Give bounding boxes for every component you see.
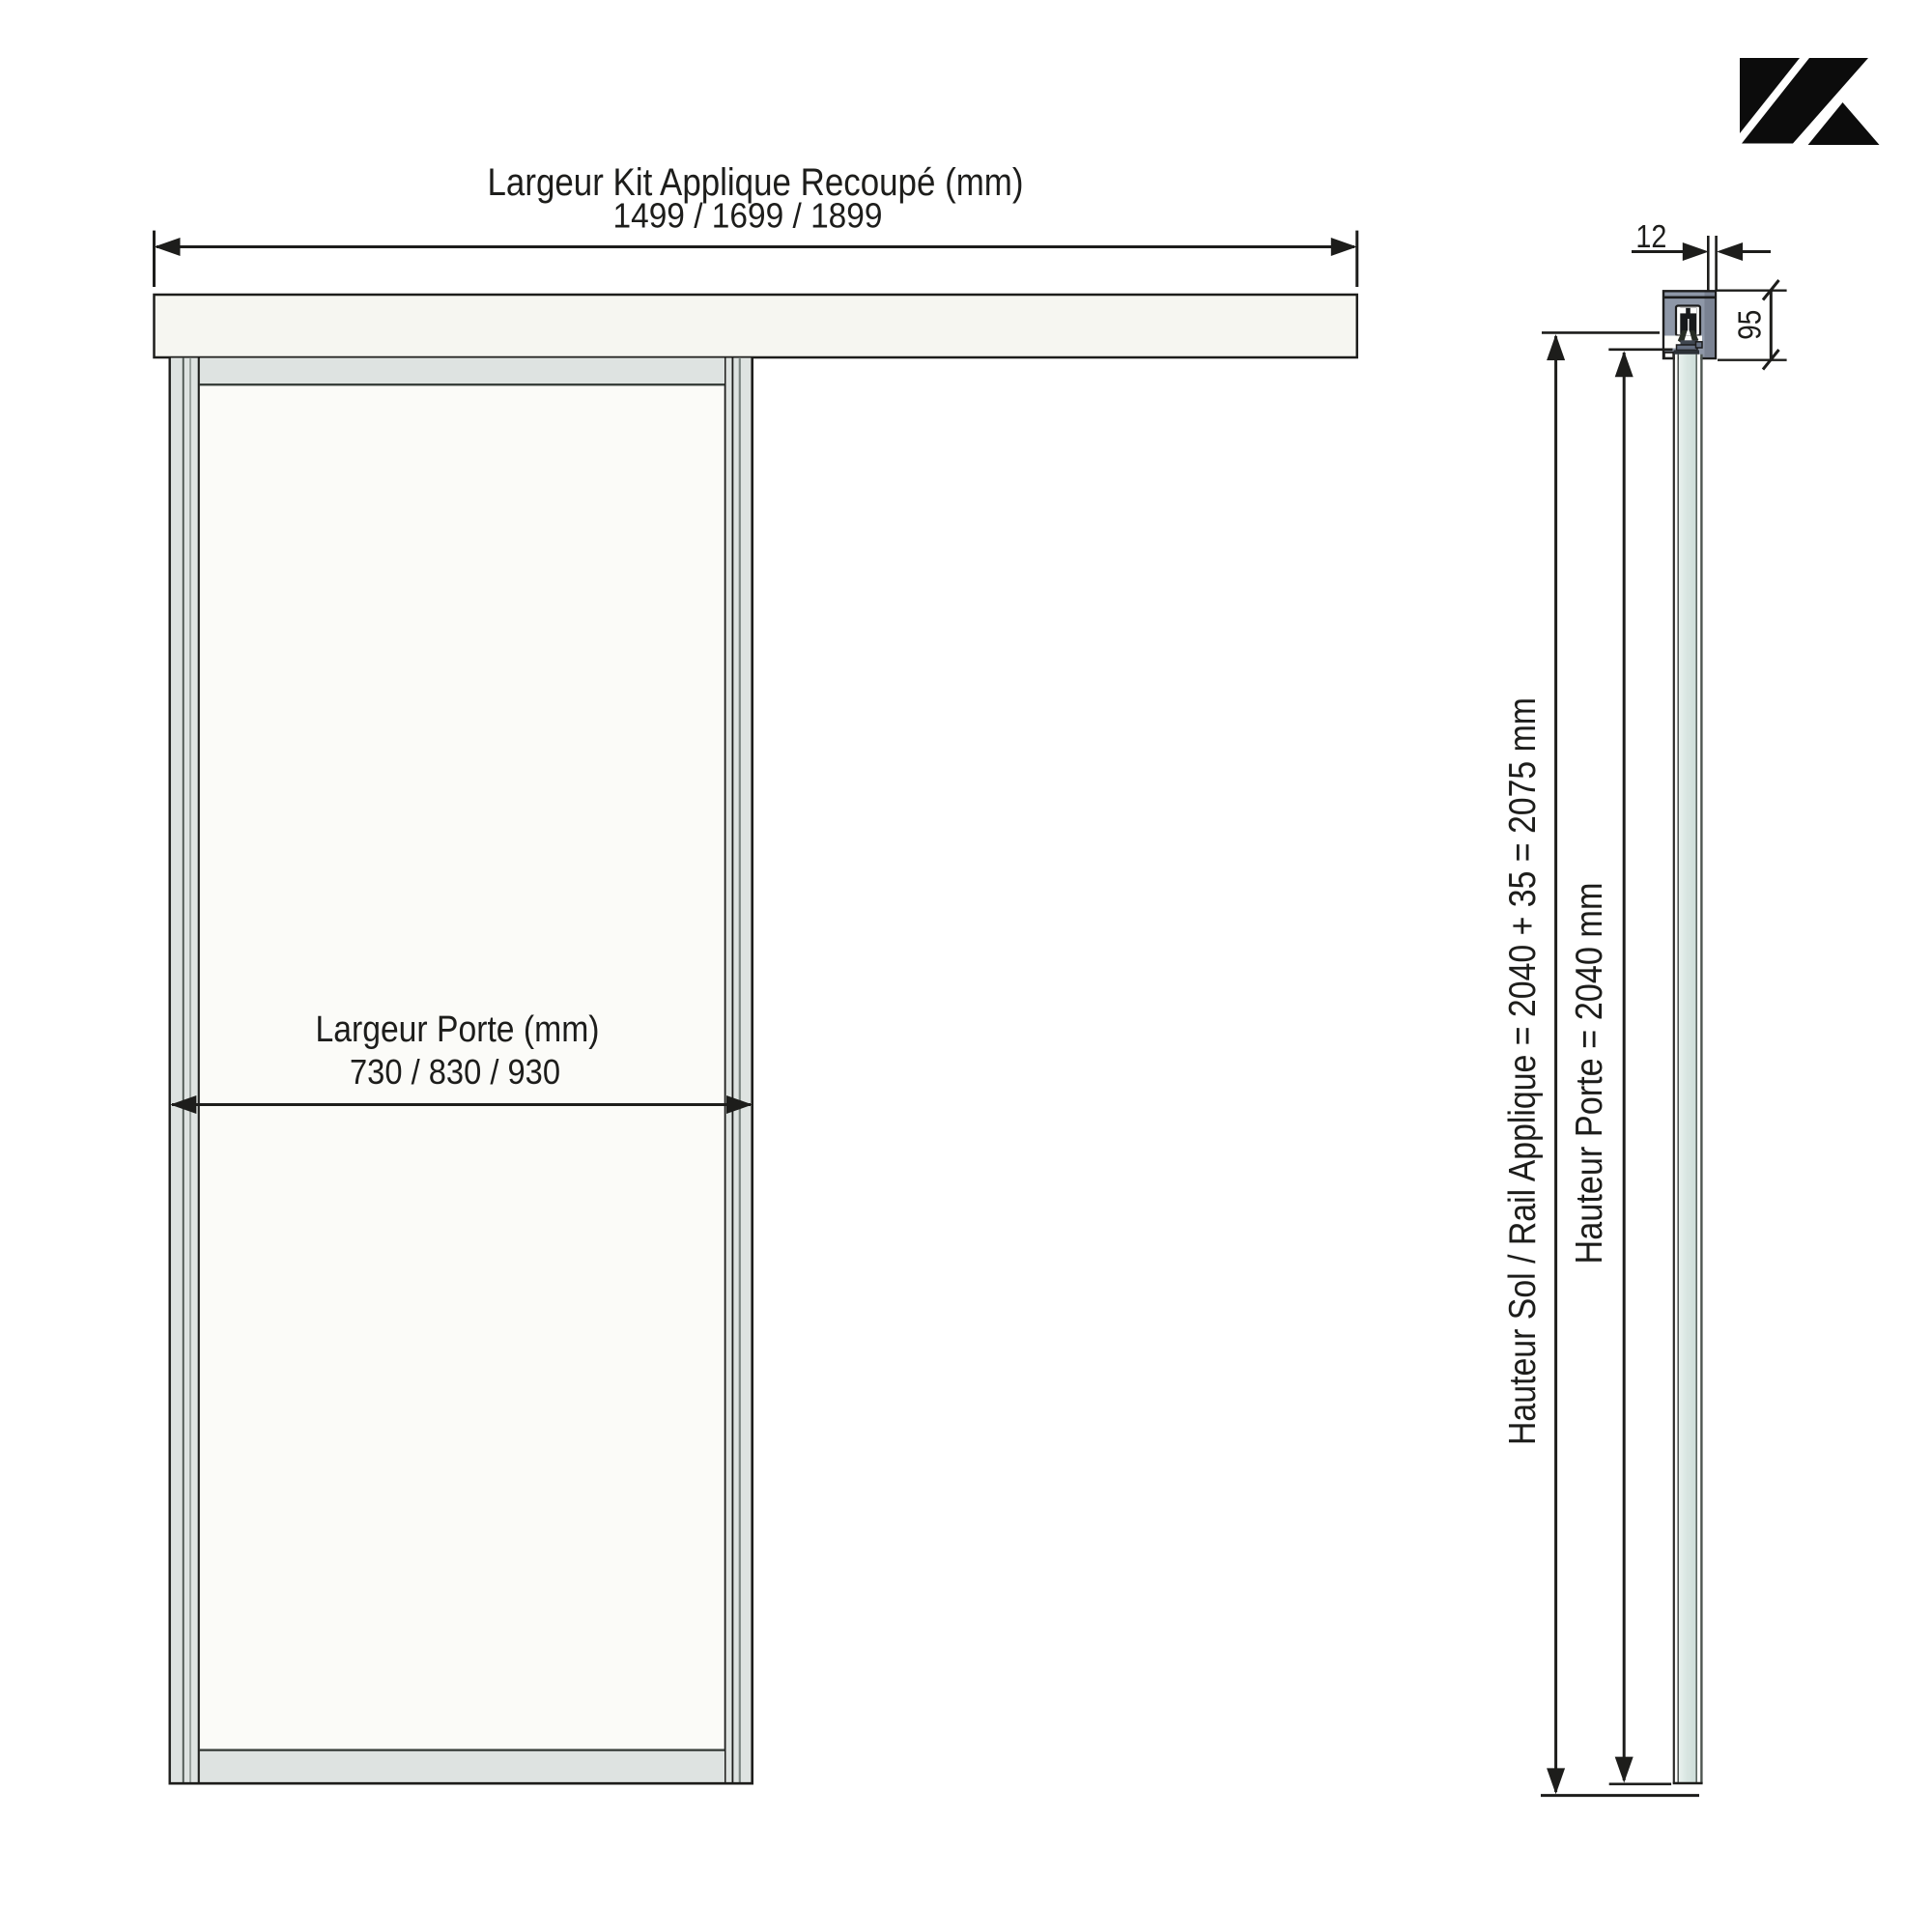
svg-text:730 / 830 / 930: 730 / 830 / 930 — [350, 1052, 560, 1092]
svg-text:12: 12 — [1635, 218, 1666, 254]
svg-text:1499 / 1699 / 1899: 1499 / 1699 / 1899 — [613, 196, 883, 236]
svg-text:95: 95 — [1732, 310, 1768, 340]
svg-text:Hauteur Porte = 2040 mm: Hauteur Porte = 2040 mm — [1569, 883, 1610, 1264]
svg-text:Largeur Porte (mm): Largeur Porte (mm) — [316, 1009, 600, 1050]
svg-text:Hauteur Sol / Rail Applique =: Hauteur Sol / Rail Applique = 2040 + 35 … — [1502, 697, 1544, 1445]
